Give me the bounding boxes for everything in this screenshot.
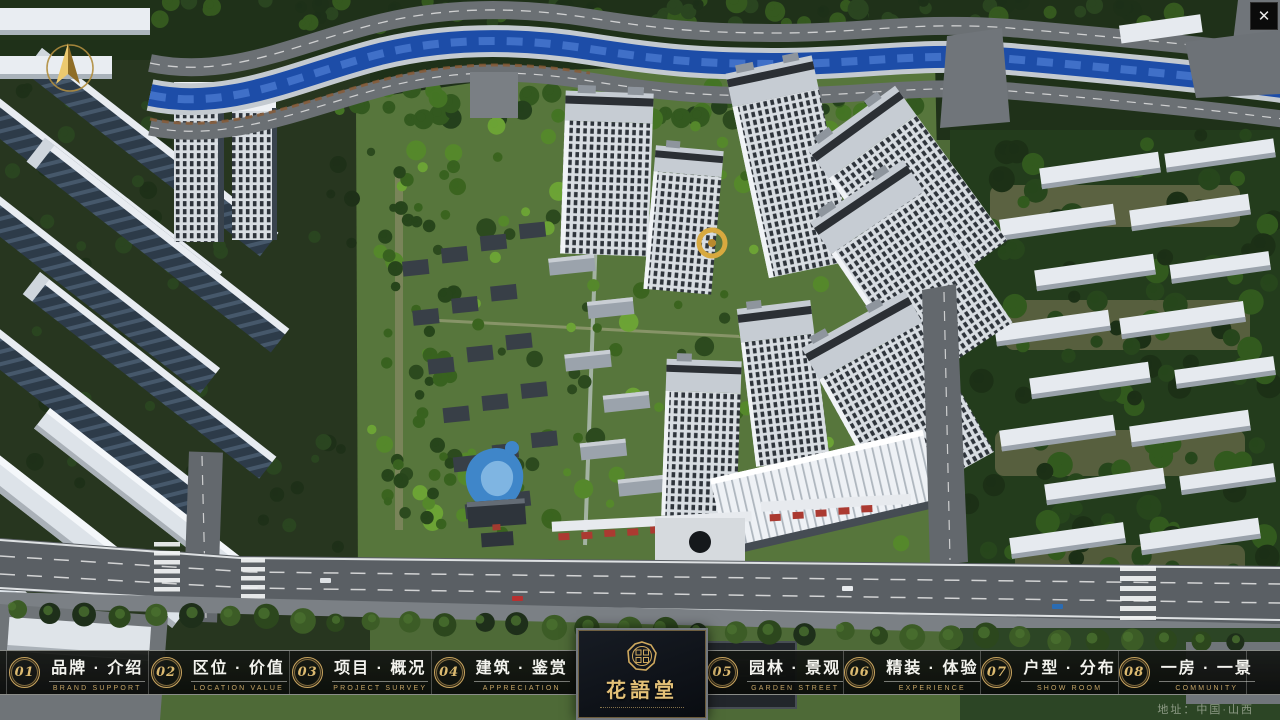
nav-number-badge: 04: [434, 657, 465, 688]
nav-number-badge: 03: [292, 657, 323, 688]
nav-item-interior[interactable]: 06 精装 · 体验 EXPERIENCE: [843, 651, 980, 694]
nav-item-project[interactable]: 03 项目 · 概况 PROJECT SURVEY: [289, 651, 431, 694]
nav-number-badge: 01: [9, 657, 40, 688]
nav-label-zh: 建筑 · 鉴赏: [474, 654, 570, 682]
nav-label-zh: 品牌 · 介绍: [49, 654, 145, 682]
nav-label-zh: 户型 · 分布: [1021, 654, 1117, 682]
presentation-app: ✕ 01 品牌 · 介绍 BRAND SUPPORT 02 区位 · 价值 LO…: [0, 0, 1280, 720]
nav-label-en: EXPERIENCE: [899, 685, 966, 692]
nav-label-en: PROJECT SURVEY: [333, 685, 427, 692]
project-logo-title: 花語堂: [606, 674, 678, 703]
nav-label-zh: 区位 · 价值: [191, 654, 287, 682]
nav-label-zh: 一房 · 一景: [1159, 654, 1255, 682]
nav-number-badge: 05: [707, 657, 738, 688]
nav-item-garden[interactable]: 05 园林 · 景观 GARDEN STREET: [706, 651, 843, 694]
nav-number-badge: 06: [844, 657, 875, 688]
nav-label-en: LOCATION VALUE: [194, 685, 284, 692]
aerial-masterplan-render: [0, 0, 1280, 720]
nav-label-en: COMMUNITY: [1175, 685, 1238, 692]
project-logo-panel[interactable]: 花語堂: [576, 628, 708, 720]
nav-label-en: BRAND SUPPORT: [53, 685, 142, 692]
nav-group-right: 05 园林 · 景观 GARDEN STREET 06 精装 · 体验 EXPE…: [706, 651, 1247, 694]
project-address: 地址：中国·山西: [1157, 701, 1254, 717]
nav-number-badge: 02: [151, 657, 182, 688]
nav-item-brand[interactable]: 01 品牌 · 介绍 BRAND SUPPORT: [6, 651, 148, 694]
nav-number-badge: 07: [981, 657, 1012, 688]
nav-label-zh: 项目 · 概况: [332, 654, 428, 682]
entry-plaza: [655, 518, 745, 562]
nav-label-zh: 精装 · 体验: [884, 654, 980, 682]
nav-number-badge: 08: [1119, 657, 1150, 688]
nav-item-architecture[interactable]: 04 建筑 · 鉴赏 APPRECIATION: [431, 651, 573, 694]
compass-needle-dark: [68, 43, 80, 84]
north-compass: [28, 22, 114, 108]
nav-group-left: 01 品牌 · 介绍 BRAND SUPPORT 02 区位 · 价值 LOCA…: [6, 651, 572, 694]
nav-label-en: APPRECIATION: [483, 685, 561, 692]
nav-label-en: GARDEN STREET: [751, 685, 839, 692]
close-button[interactable]: ✕: [1250, 2, 1278, 30]
seal-emblem-icon: [627, 641, 657, 671]
nav-item-views[interactable]: 08 一房 · 一景 COMMUNITY: [1118, 651, 1255, 694]
logo-caption-line: [600, 706, 684, 708]
nav-label-zh: 园林 · 景观: [747, 654, 843, 682]
nav-item-location[interactable]: 02 区位 · 价值 LOCATION VALUE: [148, 651, 290, 694]
nav-item-floorplan[interactable]: 07 户型 · 分布 SHOW ROOM: [980, 651, 1117, 694]
nav-label-en: SHOW ROOM: [1037, 685, 1102, 692]
